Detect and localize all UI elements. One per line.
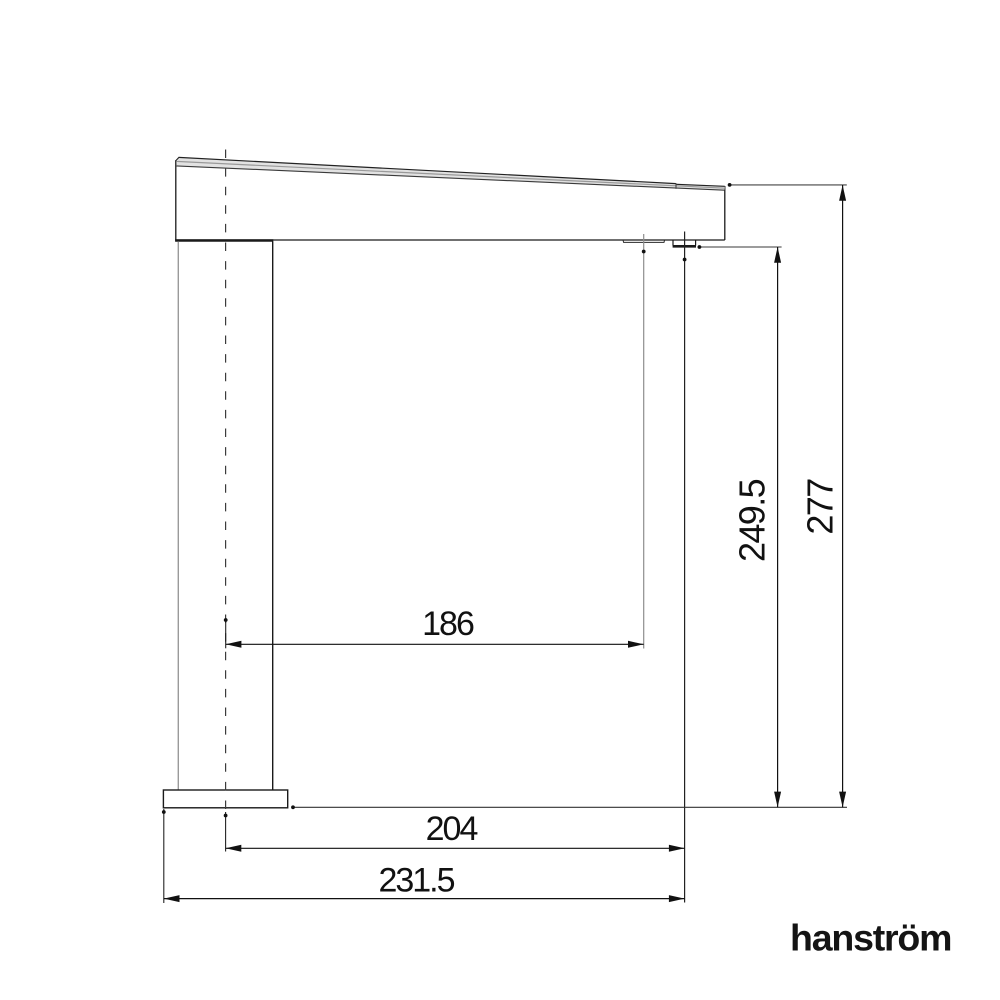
- svg-text:hanström: hanström: [790, 917, 951, 959]
- svg-text:249.5: 249.5: [732, 479, 773, 562]
- svg-text:231.5: 231.5: [378, 862, 454, 900]
- svg-text:186: 186: [422, 605, 474, 643]
- svg-text:204: 204: [426, 810, 478, 848]
- svg-text:277: 277: [800, 479, 841, 535]
